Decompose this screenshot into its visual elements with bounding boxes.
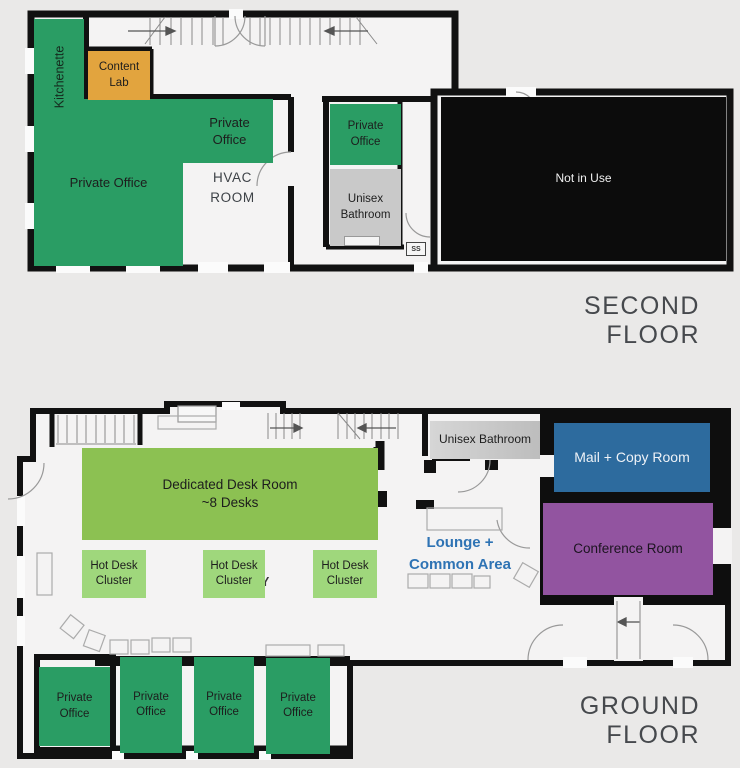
private-office-g1-label: Private Office	[50, 691, 100, 721]
not-in-use-label: Not in Use	[555, 171, 611, 187]
room-private-office-g2: Private Office	[120, 657, 182, 753]
lounge-common-area-label: Lounge + Common Area	[392, 532, 528, 576]
hot-desk-2-label: Hot Desk Cluster	[205, 559, 263, 589]
room-hot-desk-3: Hot Desk Cluster	[313, 550, 377, 598]
service-shaft-box: SS	[406, 242, 426, 256]
room-private-office-middle: Private Office	[152, 99, 273, 163]
content-lab-label: Content Lab	[94, 60, 144, 90]
dedicated-desk-sublabel: ~8 Desks	[202, 494, 259, 512]
private-office-large-label: Private Office	[70, 174, 148, 191]
unisex-bathroom-2f-label: Unisex Bathroom	[337, 192, 395, 222]
bathroom-sink	[344, 236, 380, 246]
lounge-label-line2: Common Area	[409, 556, 511, 573]
mail-copy-label: Mail + Copy Room	[574, 448, 690, 466]
second-floor-title: SECOND FLOOR	[490, 292, 700, 350]
room-mail-copy: Mail + Copy Room	[554, 423, 710, 492]
room-private-office-small: Private Office	[330, 104, 401, 165]
room-hot-desk-2: Hot Desk Cluster	[203, 550, 265, 598]
private-office-g4-label: Private Office	[273, 691, 323, 721]
unisex-bathroom-ground-label: Unisex Bathroom	[439, 432, 531, 448]
room-unisex-bathroom-ground: Unisex Bathroom	[430, 421, 540, 459]
room-dedicated-desk: Dedicated Desk Room ~8 Desks	[82, 448, 378, 540]
room-conference: Conference Room	[543, 503, 713, 595]
hvac-room-label: HVAC ROOM	[202, 168, 264, 209]
private-office-g2-label: Private Office	[126, 690, 176, 720]
room-hot-desk-1: Hot Desk Cluster	[82, 550, 146, 598]
room-hvac-label: HVAC ROOM	[180, 164, 285, 212]
room-not-in-use: Not in Use	[441, 97, 726, 261]
room-kitchenette-label: Kitchenette	[34, 22, 84, 132]
conference-label: Conference Room	[573, 540, 683, 558]
room-unisex-bathroom-2f: Unisex Bathroom	[330, 169, 401, 246]
room-private-office-g1: Private Office	[39, 667, 110, 746]
service-shaft-label: SS	[411, 246, 420, 253]
private-office-middle-label: Private Office	[205, 114, 255, 148]
private-office-g3-label: Private Office	[199, 690, 249, 720]
room-content-lab: Content Lab	[88, 51, 150, 100]
dedicated-desk-label: Dedicated Desk Room	[162, 476, 297, 494]
kitchenette-label: Kitchenette	[52, 46, 66, 109]
ground-floor-title: GROUND FLOOR	[490, 692, 700, 750]
office-floor-plan: Kitchenette Private Office Content Lab P…	[0, 0, 740, 768]
lounge-label-line1: Lounge +	[426, 534, 493, 551]
hot-desk-3-label: Hot Desk Cluster	[316, 559, 374, 589]
hot-desk-1-label: Hot Desk Cluster	[85, 559, 143, 589]
private-office-small-label: Private Office	[341, 119, 391, 149]
room-private-office-g4: Private Office	[266, 658, 330, 754]
room-private-office-g3: Private Office	[194, 657, 254, 753]
